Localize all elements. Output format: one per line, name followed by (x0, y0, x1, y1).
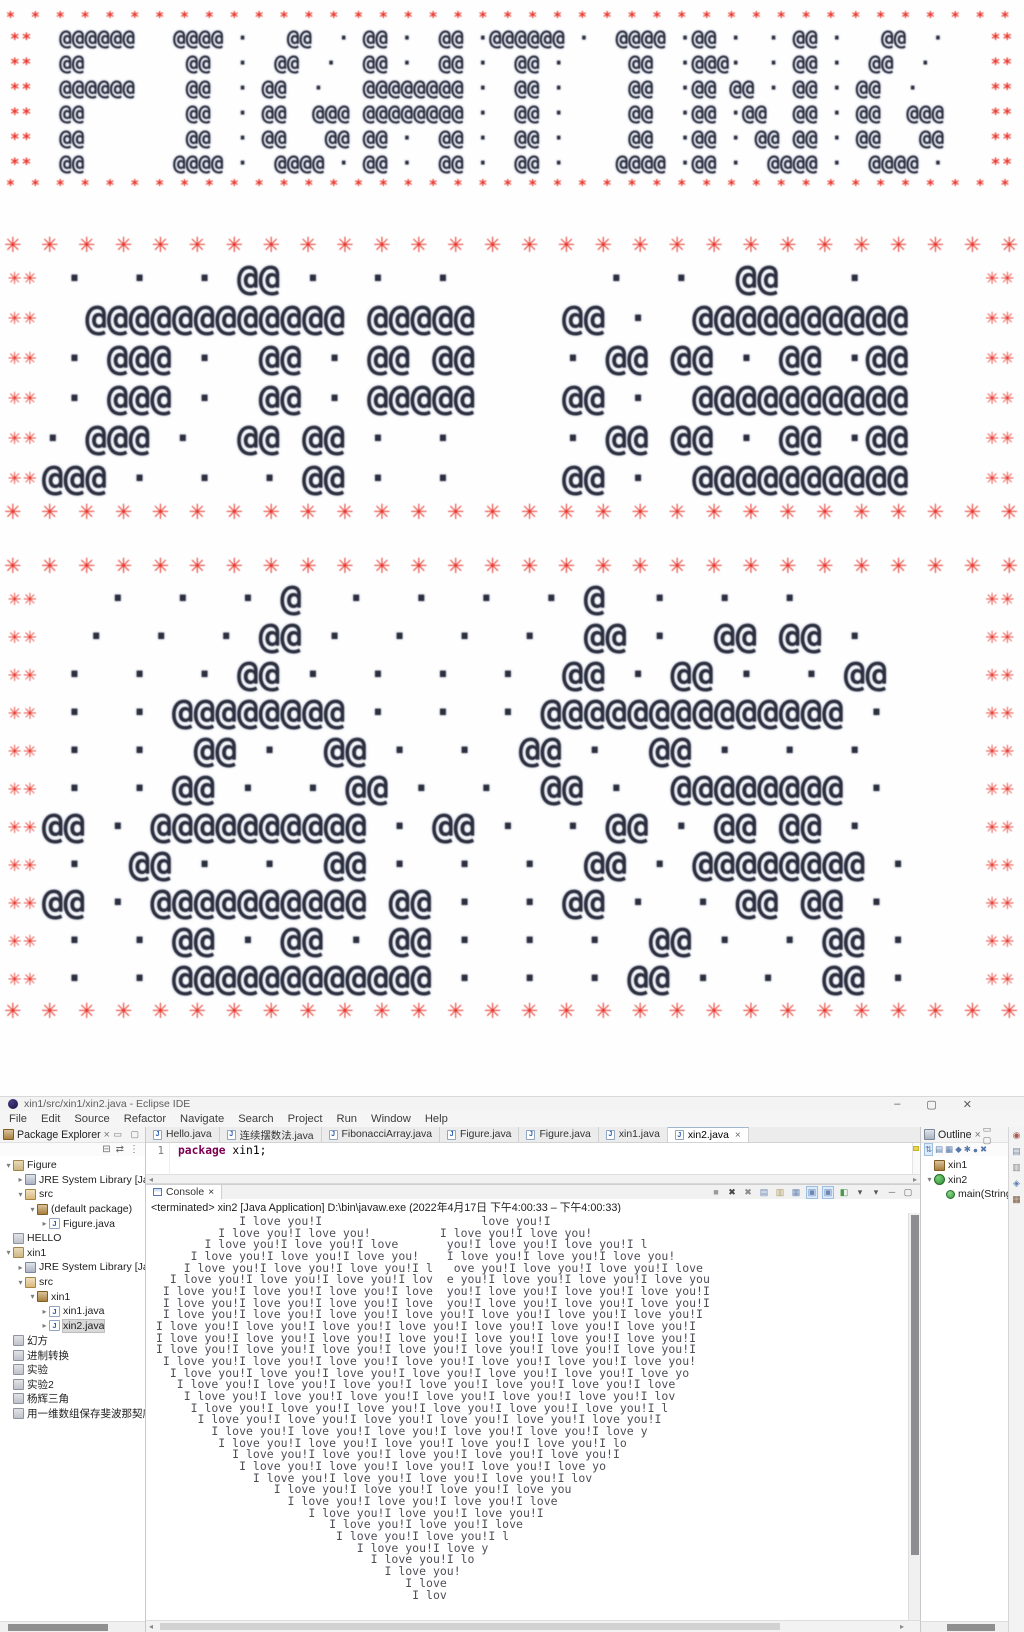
ascii-side-left: ✳✳ (8, 960, 39, 998)
ascii-row: ✳✳ · · @@@@@@@@@@@@ · · · @@ · · @@ ·✳✳ (0, 960, 1024, 998)
tab-xin1.java[interactable]: Jxin1.java (599, 1127, 668, 1142)
ascii-row-text: @@@ · · · @@ · · @@ · @@@@@@@@@@ (42, 459, 1024, 499)
ascii-row-text: · · · @@ · · · · · @@ · (42, 259, 1024, 299)
ascii-side-left: ** (10, 151, 33, 176)
ascii-row: ** @@ @@ · @@ @@@ @@@@@@@@ · @@ · @@ ·@@… (0, 101, 1024, 126)
ascii-row: ** @@ @@ · @@ · @@ · @@ · @@ · @@ ·@@@· … (0, 51, 1024, 76)
ascii-row: ** @@@@@@ @@@@ · @@ · @@ · @@ ·@@@@@@ · … (0, 26, 1024, 51)
package-explorer-tree: ▾Figure▸JRE System Library [Java▾src▾(de… (0, 1156, 145, 1421)
method-icon (946, 1190, 955, 1199)
ascii-side-right: ** (991, 151, 1014, 176)
scroll-right-icon[interactable]: ▸ (913, 1175, 917, 1184)
hide-fields-icon[interactable]: ▤ (935, 1144, 943, 1155)
editor-tabbar: JHello.javaJ连续摆数法.javaJFibonacciArray.ja… (146, 1127, 920, 1143)
library-icon (25, 1174, 36, 1185)
ascii-side-left: ✳✳ (8, 299, 39, 337)
ascii-border-top: * * * * * * * * * * * * * * * * * * * * … (0, 8, 1024, 26)
ascii-side-right: ✳✳ (986, 656, 1017, 694)
ascii-side-left: ✳✳ (8, 339, 39, 377)
explorer-item-xin1[interactable]: ▾xin1 (0, 1289, 145, 1304)
outline-close-icon[interactable]: × (975, 1129, 981, 1141)
close-button[interactable]: ✕ (963, 1098, 972, 1111)
ascii-side-right: ✳✳ (986, 694, 1017, 732)
scrollbar-thumb[interactable] (947, 1624, 995, 1631)
ascii-side-left: ✳✳ (8, 259, 39, 297)
project-closed-icon (13, 1233, 24, 1244)
java-file-icon: J (447, 1130, 456, 1140)
tree-item-label: main(String (958, 1188, 1008, 1200)
ascii-row: ✳✳@@ · @@@@@@@@@@ · @@ · · @@ · @@ @@ · … (0, 808, 1024, 846)
console-output-text: I love you!I love you!I I love you!I lov… (156, 1216, 920, 1601)
ascii-side-right: ✳✳ (986, 419, 1017, 457)
ascii-side-right: ** (991, 101, 1014, 126)
tree-expander-icon[interactable]: ▾ (28, 1205, 37, 1214)
workbench: Package Explorer × ▭ ▢ ⊟⇄⋮ ▾Figure▸JRE S… (0, 1127, 1024, 1632)
ascii-side-left: ✳✳ (8, 922, 39, 960)
java-icon: J (49, 1218, 60, 1229)
link-icon[interactable]: ✖ (980, 1144, 987, 1155)
ascii-side-right: ✳✳ (986, 259, 1017, 297)
ascii-side-right: ✳✳ (986, 770, 1017, 808)
focus-icon[interactable]: ● (973, 1145, 978, 1155)
ascii-side-right: ✳✳ (986, 459, 1017, 497)
ascii-row: ✳✳ · · @@ · @@ · @@ · · · @@ · · @@ ·✳✳ (0, 922, 1024, 960)
ascii-row-text: · · @@@@@@@@@@@@ · · · @@ · · @@ · (42, 960, 1024, 998)
ascii-side-right: ** (991, 126, 1014, 151)
tree-item-label: HELLO (27, 1232, 61, 1244)
java-icon: J (49, 1306, 60, 1317)
ascii-side-right: ✳✳ (986, 960, 1017, 998)
word-wrap-icon[interactable]: ▦ (790, 1187, 802, 1198)
explorer-item-HELLO[interactable]: HELLO (0, 1231, 145, 1246)
ascii-side-right: ✳✳ (986, 732, 1017, 770)
ascii-row: ✳✳ · · @@ · · @@ · · @@ · @@@@@@@@ · ✳✳ (0, 770, 1024, 808)
ascii-row-text: · · @@ · · @@ · · @@ · @@@@@@@@ · (42, 770, 1024, 808)
outline-header[interactable]: Outline × ▭ ▢ (921, 1127, 1008, 1143)
window-controls: – ▢ ✕ (894, 1098, 1016, 1111)
ascii-row: ✳✳@@@ · · · @@ · · @@ · @@@@@@@@@@✳✳ (0, 459, 1024, 499)
tree-item-label: src (39, 1276, 53, 1288)
explorer-item-src[interactable]: ▾src (0, 1187, 145, 1202)
tree-expander-icon[interactable]: ▾ (925, 1175, 934, 1184)
tab-label: Figure.java (460, 1129, 511, 1140)
scroll-left-icon[interactable]: ◂ (149, 1175, 153, 1184)
window-title: xin1/src/xin1/xin2.java - Eclipse IDE (24, 1098, 190, 1110)
hide-nonpublic-icon[interactable]: ◆ (955, 1144, 962, 1155)
tree-expander-icon[interactable]: ▾ (16, 1278, 25, 1287)
ascii-row-text: @@ @@ · @@ @@@ @@@@@@@@ · @@ · @@ ·@@ ·@… (34, 101, 1024, 126)
outline-minmax-icons[interactable]: ▭ ▢ (983, 1127, 1005, 1146)
scroll-right-icon[interactable]: ▸ (900, 1622, 904, 1631)
java-icon: J (49, 1320, 60, 1331)
hide-local-icon[interactable]: ✱ (964, 1144, 971, 1155)
tree-item-label: xin2.java (63, 1320, 104, 1332)
ascii-row: ✳✳ @@@@@@@@@@@@ @@@@@ @@ · @@@@@@@@@@✳✳ (0, 299, 1024, 339)
menubar: FileEditSourceRefactorNavigateSearchProj… (0, 1111, 1024, 1127)
scrollbar-thumb[interactable] (8, 1624, 108, 1631)
menu-edit[interactable]: Edit (34, 1113, 67, 1125)
editor-hscrollbar[interactable]: ◂ ▸ (146, 1174, 920, 1184)
hide-static-icon[interactable]: ▦ (945, 1144, 953, 1155)
ascii-side-right: ** (991, 51, 1014, 76)
tree-expander-icon[interactable]: ▸ (16, 1175, 25, 1184)
maximize-button[interactable]: ▢ (926, 1098, 936, 1111)
minimize-view-icon[interactable]: ─ (886, 1187, 898, 1198)
scrollbar-thumb[interactable] (160, 1623, 780, 1630)
scroll-left-icon[interactable]: ◂ (149, 1622, 153, 1631)
menu-refactor[interactable]: Refactor (117, 1113, 173, 1125)
project-icon (13, 1160, 24, 1171)
ascii-border-top: ✳ ✳ ✳ ✳ ✳ ✳ ✳ ✳ ✳ ✳ ✳ ✳ ✳ ✳ ✳ ✳ ✳ ✳ ✳ ✳ … (0, 553, 1024, 580)
ascii-row-text: @@ @@@@ · @@@@ · @@ · @@ · @@ · @@@@ ·@@… (34, 151, 1024, 176)
tab-label: 连续摆数法.java (240, 1127, 314, 1142)
explorer-item-幻方[interactable]: 幻方 (0, 1333, 145, 1348)
class-icon (934, 1174, 945, 1185)
code-line: package xin1; (170, 1143, 266, 1174)
ascii-row: ** @@ @@ · @@ @@ @@ · @@ · @@ · @@ ·@@ ·… (0, 126, 1024, 151)
ascii-row: ✳✳ · @@@ · @@ · @@ @@ · @@ @@ · @@ ·@@✳✳ (0, 339, 1024, 379)
package-explorer-panel: Package Explorer × ▭ ▢ ⊟⇄⋮ ▾Figure▸JRE S… (0, 1127, 146, 1632)
ascii-row-text: · @@@ · @@ · @@ @@ · @@ @@ · @@ ·@@ (42, 339, 1024, 379)
outline-icon (924, 1129, 935, 1140)
ascii-side-left: ✳✳ (8, 694, 39, 732)
tree-item-label: 用一维数组保存斐波那契序列 (27, 1406, 145, 1421)
line-number-gutter: 1 (146, 1143, 170, 1174)
clear-console-icon[interactable]: ▤ (758, 1187, 770, 1198)
scrollbar-thumb[interactable] (911, 1215, 919, 1555)
pkg-icon (37, 1204, 48, 1215)
menu-search[interactable]: Search (231, 1113, 280, 1125)
ascii-side-left: ✳✳ (8, 770, 39, 808)
ascii-side-left: ✳✳ (8, 459, 39, 497)
tree-item-label: xin1 (51, 1291, 70, 1303)
explorer-item-进制转换[interactable]: 进制转换 (0, 1348, 145, 1363)
explorer-item-xin1[interactable]: ▾xin1 (0, 1246, 145, 1261)
tab-Figure.java[interactable]: JFigure.java (519, 1127, 598, 1142)
ascii-side-left: ✳✳ (8, 656, 39, 694)
src-icon (25, 1277, 36, 1288)
ascii-row: ✳✳ · · @@ · @@ · · @@ · @@ · · · ✳✳ (0, 732, 1024, 770)
explorer-item-Figure.java[interactable]: ▸JFigure.java (0, 1216, 145, 1231)
explorer-item-(default package)[interactable]: ▾(default package) (0, 1202, 145, 1217)
tree-item-label: JRE System Library [Java (39, 1174, 145, 1186)
scroll-lock-icon[interactable]: ▥ (774, 1187, 786, 1198)
tree-item-label: Figure.java (63, 1218, 115, 1230)
menu-help[interactable]: Help (418, 1113, 455, 1125)
minimized-view-icon[interactable]: ▦ (1012, 1194, 1021, 1204)
outline-item-xin1[interactable]: xin1 (921, 1158, 1008, 1173)
package-explorer-icon (3, 1129, 14, 1140)
ascii-row-text: @@ · @@@@@@@@@@ · @@ · · @@ · @@ @@ · (42, 808, 1024, 846)
maximize-view-icon[interactable]: ▢ (902, 1187, 914, 1198)
tree-item-label: xin1 (948, 1159, 967, 1171)
tab-连续摆数法.java[interactable]: J连续摆数法.java (220, 1127, 322, 1142)
java-file-icon: J (526, 1130, 535, 1140)
ascii-row-text: @@ @@ · @@ · @@ · @@ · @@ · @@ ·@@@· · @… (34, 51, 1024, 76)
tree-expander-icon[interactable]: ▾ (16, 1190, 25, 1199)
explorer-item-src[interactable]: ▾src (0, 1275, 145, 1290)
ascii-side-left: ✳✳ (8, 808, 39, 846)
package-explorer-title: Package Explorer (17, 1129, 101, 1141)
explorer-item-杨辉三角[interactable]: 杨辉三角 (0, 1392, 145, 1407)
ascii-row-text: @@@@@@ @@@@ · @@ · @@ · @@ ·@@@@@@ · @@@… (34, 26, 1024, 51)
tab-label: Figure.java (539, 1129, 590, 1140)
tab-label: Hello.java (166, 1129, 212, 1140)
ascii-block-fighting: * * * * * * * * * * * * * * * * * * * * … (0, 8, 1024, 194)
ascii-side-left: ** (10, 101, 33, 126)
ascii-side-right: ✳✳ (986, 299, 1017, 337)
ascii-side-right: ✳✳ (986, 580, 1017, 618)
tab-close-icon[interactable]: × (735, 1130, 741, 1141)
tree-expander-icon[interactable]: ▾ (4, 1248, 13, 1257)
package-explorer-hscrollbar[interactable] (0, 1621, 145, 1632)
project-icon (13, 1247, 24, 1258)
console-icon (153, 1188, 162, 1196)
ascii-side-left: ✳✳ (8, 379, 39, 417)
menu-window[interactable]: Window (364, 1113, 418, 1125)
explorer-item-Figure[interactable]: ▾Figure (0, 1158, 145, 1173)
ascii-side-left: ** (10, 76, 33, 101)
project-closed-icon (13, 1379, 24, 1390)
collapse-all-icon[interactable]: ⊟ (102, 1144, 110, 1155)
ascii-side-right: ✳✳ (986, 884, 1017, 922)
code-editor[interactable]: 1 package xin1; (146, 1143, 920, 1174)
tree-item-label: src (39, 1188, 53, 1200)
eclipse-logo-icon (8, 1099, 18, 1109)
tree-expander-icon[interactable]: ▾ (28, 1292, 37, 1301)
explorer-item-xin2.java[interactable]: ▸Jxin2.java (0, 1319, 145, 1334)
package-explorer-close-icon[interactable]: × (104, 1129, 110, 1141)
menu-file[interactable]: File (2, 1113, 34, 1125)
explorer-item-JRE System Library [Java[interactable]: ▸JRE System Library [Java (0, 1260, 145, 1275)
project-closed-icon (13, 1350, 24, 1361)
minimized-view-icon[interactable]: ◈ (1013, 1178, 1020, 1188)
ascii-side-left: ✳✳ (8, 580, 39, 618)
keyword-token: package (178, 1144, 226, 1157)
overview-annotation (913, 1146, 919, 1151)
tree-expander-icon[interactable]: ▸ (40, 1219, 49, 1228)
show-stdout-icon[interactable]: ▣ (806, 1186, 818, 1199)
src-icon (25, 1189, 36, 1200)
tree-item-label: 杨辉三角 (27, 1392, 69, 1407)
tree-expander-icon[interactable]: ▾ (4, 1161, 13, 1170)
project-closed-icon (13, 1408, 24, 1419)
menu-source[interactable]: Source (67, 1113, 116, 1125)
ascii-side-left: ✳✳ (8, 419, 39, 457)
console-tab[interactable]: Console × (146, 1185, 222, 1199)
ascii-side-left: ** (10, 126, 33, 151)
minimize-button[interactable]: – (894, 1098, 900, 1111)
ascii-side-right: ** (991, 76, 1014, 101)
tree-item-label: Figure (27, 1159, 57, 1171)
ascii-border-bottom: ✳ ✳ ✳ ✳ ✳ ✳ ✳ ✳ ✳ ✳ ✳ ✳ ✳ ✳ ✳ ✳ ✳ ✳ ✳ ✳ … (0, 499, 1024, 526)
outline-item-main(String[interactable]: main(String (921, 1187, 1008, 1202)
menu-run[interactable]: Run (329, 1113, 364, 1125)
ascii-row-text: @@ @@ · @@ @@ @@ · @@ · @@ · @@ ·@@ · @@… (34, 126, 1024, 151)
console-status-line: <terminated> xin2 [Java Application] D:\… (146, 1199, 920, 1213)
ascii-row-text: · @@@ · @@ · @@@@@ @@ · @@@@@@@@@@ (42, 379, 1024, 419)
outline-hscrollbar[interactable] (921, 1621, 1008, 1632)
explorer-item-实验2[interactable]: 实验2 (0, 1377, 145, 1392)
minimized-view-icon[interactable]: ▤ (1012, 1146, 1021, 1156)
ascii-side-right: ** (991, 26, 1014, 51)
open-console-icon[interactable]: ▾ (870, 1187, 882, 1198)
overview-ruler (912, 1143, 920, 1174)
ascii-row-text: · · · @@ · · · · @@ · @@ · · @@ (42, 656, 1024, 694)
link-with-editor-icon[interactable]: ⇄ (116, 1144, 124, 1155)
ascii-row-text: @@@@@@@@@@@@ @@@@@ @@ · @@@@@@@@@@ (42, 299, 1024, 339)
eclipse-window: xin1/src/xin1/xin2.java - Eclipse IDE – … (0, 1096, 1024, 1632)
tree-item-label: JRE System Library [Java (39, 1261, 145, 1273)
tree-item-label: 幻方 (27, 1333, 48, 1348)
ascii-row: ✳✳ · · · @ · · · · @ · · · ✳✳ (0, 580, 1024, 618)
menu-navigate[interactable]: Navigate (173, 1113, 231, 1125)
ascii-side-left: ✳✳ (8, 884, 39, 922)
ascii-border-top: ✳ ✳ ✳ ✳ ✳ ✳ ✳ ✳ ✳ ✳ ✳ ✳ ✳ ✳ ✳ ✳ ✳ ✳ ✳ ✳ … (0, 232, 1024, 259)
ascii-row-text: · · · @ · · · · @ · · · (42, 580, 1024, 618)
console-ascii-art-zoomed: * * * * * * * * * * * * * * * * * * * * … (0, 0, 1024, 1096)
ascii-side-left: ** (10, 26, 33, 51)
ascii-side-left: ✳✳ (8, 846, 39, 884)
ascii-row: ✳✳@@ · @@@@@@@@@@ @@ · · @@ · · @@ @@ · … (0, 884, 1024, 922)
java-file-icon: J (675, 1130, 684, 1140)
menu-project[interactable]: Project (281, 1113, 330, 1125)
console-output-area[interactable]: I love you!I love you!I I love you!I lov… (146, 1213, 920, 1632)
ascii-row: ✳✳· @@@ · @@ @@ · · · @@ @@ · @@ ·@@✳✳ (0, 419, 1024, 459)
tree-expander-icon[interactable]: ▸ (16, 1263, 25, 1272)
explorer-item-JRE System Library [Java[interactable]: ▸JRE System Library [Java (0, 1173, 145, 1188)
tab-label: FibonacciArray.java (342, 1129, 432, 1140)
ascii-row-text: · · @@ · @@ · @@ · · · @@ · · @@ · (42, 922, 1024, 960)
tree-item-label: xin2 (948, 1174, 967, 1186)
tab-Hello.java[interactable]: JHello.java (146, 1127, 220, 1142)
ascii-row: ** @@ @@@@ · @@@@ · @@ · @@ · @@ · @@@@ … (0, 151, 1024, 176)
explorer-item-xin1.java[interactable]: ▸Jxin1.java (0, 1304, 145, 1319)
console-toolbar: ■✖✖▤▥▦▣▣◧▾▾─▢ (710, 1185, 920, 1199)
project-closed-icon (13, 1393, 24, 1404)
tree-item-label: 实验 (27, 1362, 48, 1377)
show-stderr-icon[interactable]: ▣ (822, 1186, 834, 1199)
tree-expander-icon[interactable]: ▸ (40, 1307, 49, 1316)
code-token: xin1; (226, 1144, 267, 1157)
tree-item-label: xin1 (27, 1247, 46, 1259)
ascii-side-left: ** (10, 51, 33, 76)
tree-expander-icon[interactable]: ▸ (40, 1321, 49, 1330)
view-menu-icon[interactable]: ⋮ (129, 1144, 139, 1155)
outline-title: Outline (938, 1129, 972, 1141)
java-file-icon: J (606, 1130, 615, 1140)
explorer-item-用一维数组保存斐波那契序列[interactable]: 用一维数组保存斐波那契序列 (0, 1406, 145, 1421)
ascii-side-left: ✳✳ (8, 618, 39, 656)
tree-item-label: 进制转换 (27, 1348, 69, 1363)
console-header: Console × ■✖✖▤▥▦▣▣◧▾▾─▢ (146, 1184, 920, 1199)
ascii-side-right: ✳✳ (986, 846, 1017, 884)
ascii-side-right: ✳✳ (986, 922, 1017, 960)
display-console-icon[interactable]: ▾ (854, 1187, 866, 1198)
console-vscrollbar[interactable] (908, 1213, 920, 1620)
editor-console-column: JHello.javaJ连续摆数法.javaJFibonacciArray.ja… (146, 1127, 920, 1632)
ascii-row: ✳✳ · @@@ · @@ · @@@@@ @@ · @@@@@@@@@@✳✳ (0, 379, 1024, 419)
java-file-icon: J (227, 1130, 236, 1140)
tab-label: xin2.java (688, 1130, 729, 1141)
ascii-row-text: · · · @@ · · · · @@ · @@ @@ · (42, 618, 1024, 656)
java-file-icon: J (153, 1130, 162, 1140)
ascii-row-text: · · @@@@@@@@ · · · @@@@@@@@@@@@@@ · (42, 694, 1024, 732)
tree-item-label: xin1.java (63, 1305, 104, 1317)
package-explorer-toolbar: ⊟⇄⋮ (0, 1143, 145, 1156)
ascii-row: ✳✳ · @@ · · @@ · · · @@ · @@@@@@@@ ·✳✳ (0, 846, 1024, 884)
console-close-icon[interactable]: × (208, 1187, 214, 1198)
ascii-block-glyphs-2: ✳ ✳ ✳ ✳ ✳ ✳ ✳ ✳ ✳ ✳ ✳ ✳ ✳ ✳ ✳ ✳ ✳ ✳ ✳ ✳ … (0, 553, 1024, 1025)
explorer-item-实验[interactable]: 实验 (0, 1362, 145, 1377)
ascii-row-text: · · @@ · @@ · · @@ · @@ · · · (42, 732, 1024, 770)
minimized-view-icon[interactable]: ◉ (1013, 1130, 1021, 1140)
console-tab-label: Console (166, 1187, 204, 1198)
console-hscrollbar[interactable]: ◂ ▸ (146, 1620, 920, 1632)
pin-console-icon[interactable]: ◧ (838, 1187, 850, 1198)
tab-xin2.java[interactable]: Jxin2.java× (668, 1127, 749, 1142)
ascii-row: ✳✳ · · · @@ · · · · @@ · @@ @@ · ✳✳ (0, 618, 1024, 656)
pkg-icon (37, 1291, 48, 1302)
ascii-row-text: · @@@ · @@ @@ · · · @@ @@ · @@ ·@@ (42, 419, 1024, 459)
ascii-side-right: ✳✳ (986, 618, 1017, 656)
ascii-block-glyphs-1: ✳ ✳ ✳ ✳ ✳ ✳ ✳ ✳ ✳ ✳ ✳ ✳ ✳ ✳ ✳ ✳ ✳ ✳ ✳ ✳ … (0, 232, 1024, 526)
outline-tree: xin1▾xin2main(String (921, 1156, 1008, 1202)
package-explorer-minmax-icons[interactable]: ▭ ▢ (113, 1129, 142, 1140)
terminate-icon[interactable]: ■ (710, 1187, 722, 1198)
java-file-icon: J (329, 1130, 338, 1140)
ascii-side-left: ✳✳ (8, 732, 39, 770)
ascii-side-right: ✳✳ (986, 339, 1017, 377)
ascii-row: ✳✳ · · @@@@@@@@ · · · @@@@@@@@@@@@@@ · ✳… (0, 694, 1024, 732)
remove-all-icon[interactable]: ✖ (742, 1187, 754, 1198)
ascii-row-text: · @@ · · @@ · · · @@ · @@@@@@@@ · (42, 846, 1024, 884)
tab-Figure.java[interactable]: JFigure.java (440, 1127, 519, 1142)
ascii-row: ✳✳ · · · @@ · · · · @@ · @@ · · @@ ✳✳ (0, 656, 1024, 694)
ascii-row-text: @@ · @@@@@@@@@@ @@ · · @@ · · @@ @@ · (42, 884, 1024, 922)
library-icon (25, 1262, 36, 1273)
titlebar: xin1/src/xin1/xin2.java - Eclipse IDE – … (0, 1097, 1024, 1111)
tab-FibonacciArray.java[interactable]: JFibonacciArray.java (322, 1127, 440, 1142)
project-closed-icon (13, 1364, 24, 1375)
outline-panel: Outline × ▭ ▢ ⇅▤▦◆✱●✖ xin1▾xin2main(Stri… (920, 1127, 1008, 1632)
ascii-side-right: ✳✳ (986, 379, 1017, 417)
minimized-view-icon[interactable]: ▥ (1012, 1162, 1021, 1172)
ascii-border-bottom: ✳ ✳ ✳ ✳ ✳ ✳ ✳ ✳ ✳ ✳ ✳ ✳ ✳ ✳ ✳ ✳ ✳ ✳ ✳ ✳ … (0, 998, 1024, 1025)
tab-label: xin1.java (619, 1129, 660, 1140)
sort-icon[interactable]: ⇅ (924, 1143, 933, 1156)
fast-view-strip: ◉ ▤ ▥ ◈ ▦ (1008, 1127, 1024, 1632)
tree-item-label: 实验2 (27, 1377, 54, 1392)
ascii-row: ✳✳ · · · @@ · · · · · @@ · ✳✳ (0, 259, 1024, 299)
ascii-row-text: @@@@@@ @@ · @@ · @@@@@@@@ · @@ · @@ ·@@ … (34, 76, 1024, 101)
ascii-side-right: ✳✳ (986, 808, 1017, 846)
project-closed-icon (13, 1335, 24, 1346)
ascii-row: ** @@@@@@ @@ · @@ · @@@@@@@@ · @@ · @@ ·… (0, 76, 1024, 101)
outline-item-xin2[interactable]: ▾xin2 (921, 1173, 1008, 1188)
screenshot-root: * * * * * * * * * * * * * * * * * * * * … (0, 0, 1024, 1632)
tree-item-label: (default package) (51, 1203, 132, 1215)
remove-launch-icon[interactable]: ✖ (726, 1187, 738, 1198)
ascii-border-bottom: * * * * * * * * * * * * * * * * * * * * … (0, 176, 1024, 194)
pkg-icon (934, 1160, 945, 1171)
package-explorer-header[interactable]: Package Explorer × ▭ ▢ (0, 1127, 145, 1143)
